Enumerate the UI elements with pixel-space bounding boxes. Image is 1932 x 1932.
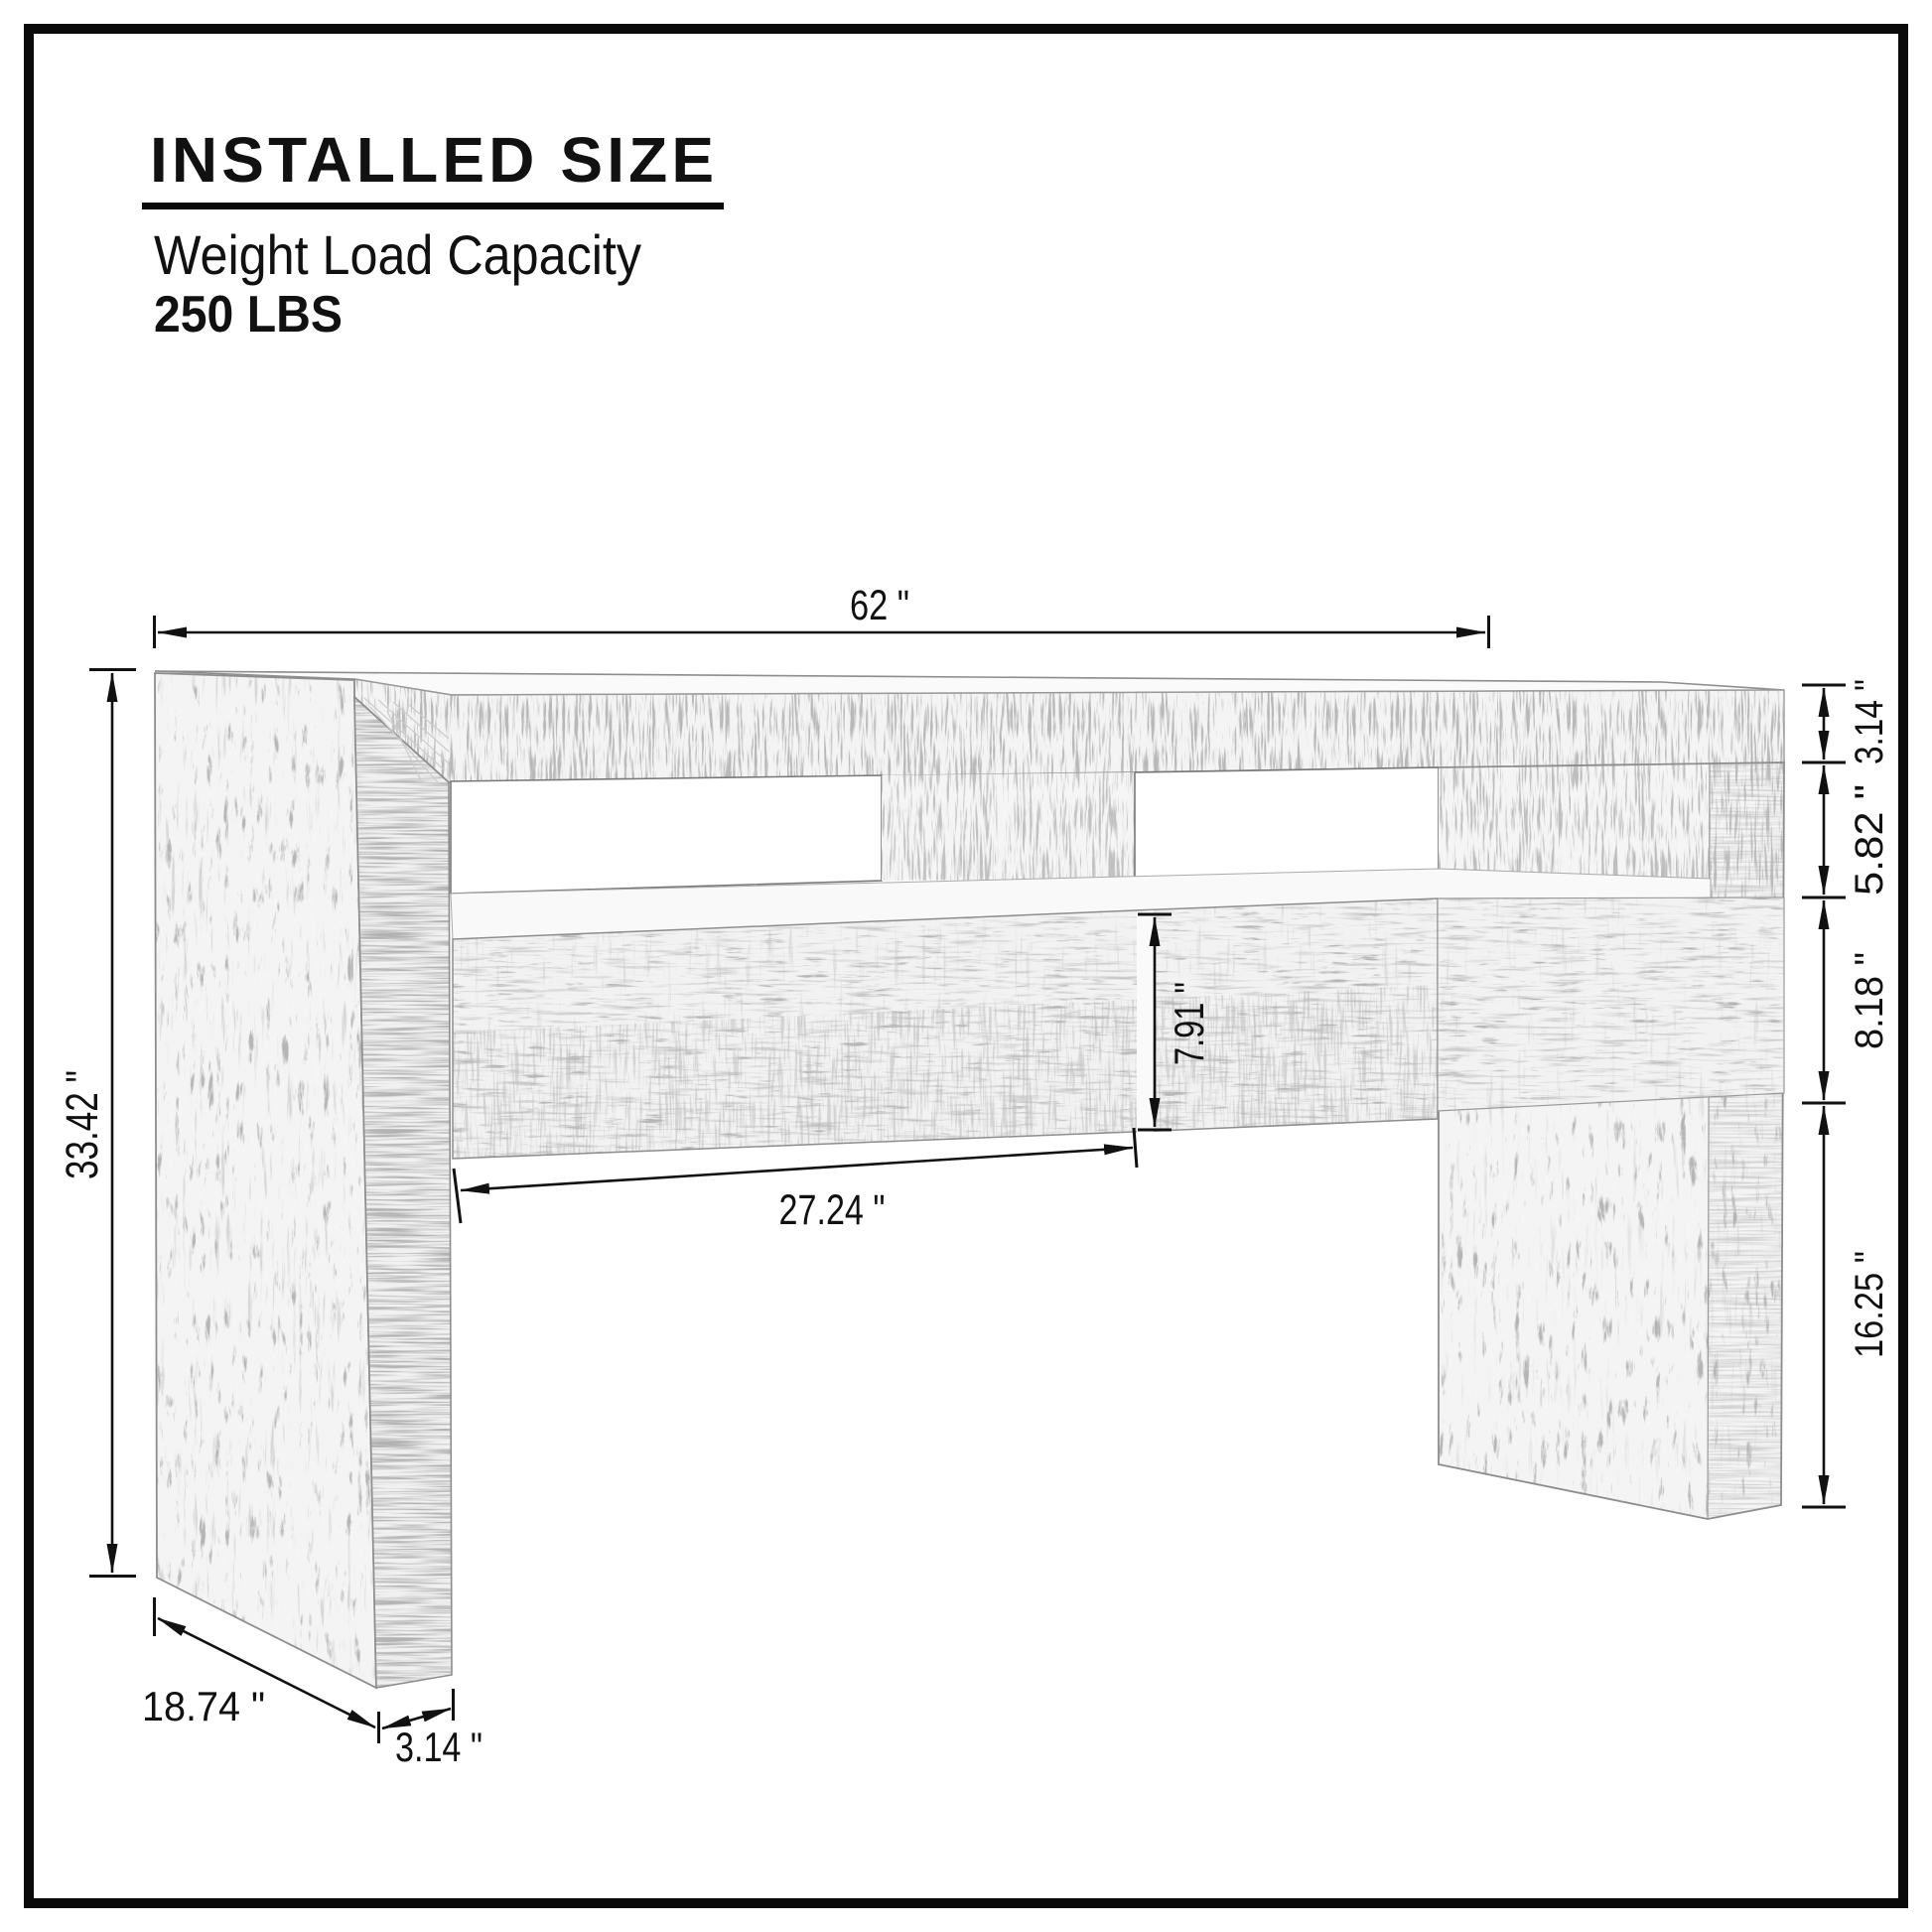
svg-text:250 LBS: 250 LBS bbox=[154, 286, 343, 344]
svg-text:INSTALLED SIZE: INSTALLED SIZE bbox=[150, 124, 714, 196]
svg-text:27.24 ": 27.24 " bbox=[779, 1186, 886, 1234]
svg-text:62 ": 62 " bbox=[850, 582, 909, 629]
svg-text:Weight Load Capacity: Weight Load Capacity bbox=[154, 223, 641, 286]
svg-text:33.42 ": 33.42 " bbox=[57, 1070, 107, 1179]
svg-text:3.14 ": 3.14 " bbox=[395, 1724, 483, 1770]
svg-text:5.82 ": 5.82 " bbox=[1848, 784, 1891, 896]
svg-text:3.14 ": 3.14 " bbox=[1848, 679, 1891, 764]
svg-text:8.18 ": 8.18 " bbox=[1848, 952, 1891, 1049]
svg-text:7.91 ": 7.91 " bbox=[1166, 982, 1212, 1065]
svg-text:16.25 ": 16.25 " bbox=[1848, 1251, 1891, 1358]
svg-text:18.74 ": 18.74 " bbox=[142, 1683, 265, 1729]
